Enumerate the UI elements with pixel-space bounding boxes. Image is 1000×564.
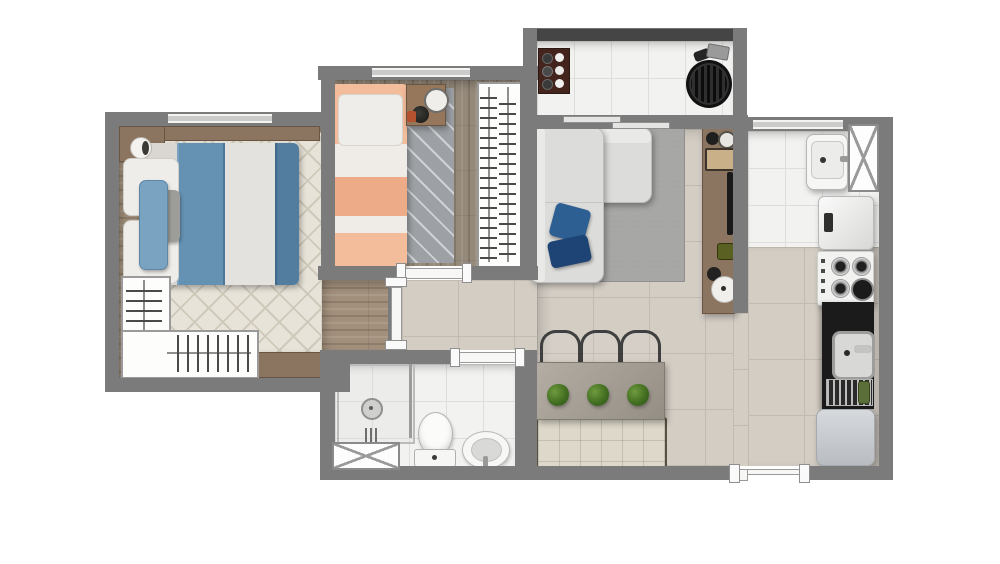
shower-head — [361, 398, 383, 420]
blue-foot-band — [275, 143, 299, 285]
bathroom-basin — [462, 431, 510, 469]
plate-shelf — [538, 48, 570, 94]
refrigerator — [816, 409, 875, 466]
decor-radio — [705, 148, 735, 171]
kitchen-sink — [832, 331, 875, 380]
plate — [555, 53, 564, 62]
wall-bottom-east — [800, 466, 893, 480]
stove — [817, 251, 874, 306]
nightstand-clock — [424, 88, 449, 113]
toilet-flush-button — [432, 455, 437, 460]
lamp-shade-shadow — [142, 141, 149, 155]
master-door-jamb — [385, 277, 407, 287]
plate — [555, 79, 564, 88]
master-door-jamb — [385, 340, 407, 350]
sink-drain — [844, 350, 850, 356]
washing-machine — [818, 196, 874, 250]
single-bed-pillow — [338, 94, 403, 146]
kitchen-counter — [822, 302, 874, 409]
blue-lumbar-pillow — [139, 180, 168, 270]
stove-burner — [831, 279, 850, 298]
sink-faucet — [855, 346, 871, 352]
bathroom-door-jamb — [450, 348, 460, 367]
balcony-glass-guardrail — [537, 28, 733, 41]
bedroom2-door-leaf — [404, 268, 464, 279]
dish-rack-plates-green — [858, 381, 870, 404]
bathroom-duct-shaft — [332, 442, 400, 470]
hallway-floor — [402, 280, 537, 350]
wood-dresser — [257, 352, 323, 378]
shower-head-center — [369, 406, 373, 410]
bedside-lamp — [130, 137, 152, 159]
shower-glass-partition — [409, 364, 412, 438]
nightstand-book — [407, 111, 416, 122]
corridor-floor — [733, 313, 748, 466]
wall-tv-console — [733, 126, 748, 313]
wardrobe-hangers — [499, 95, 516, 261]
blue-duvet — [177, 143, 225, 285]
bedroom2-door-jamb — [462, 263, 472, 283]
shower-drain — [365, 428, 378, 442]
master-door-leaf — [391, 287, 402, 342]
bedroom2-wardrobe — [477, 82, 523, 270]
wall-bath-east — [515, 364, 537, 466]
floor-plan — [0, 0, 1000, 564]
bathroom-door-jamb — [515, 348, 525, 367]
tufted-bench — [536, 417, 667, 469]
laundry-window — [753, 120, 843, 129]
white-duvet — [225, 143, 275, 285]
laundry-tank-sink — [806, 134, 848, 190]
master-bedroom-window — [168, 114, 272, 123]
wall-master-left — [105, 112, 119, 392]
washer-door-slot — [824, 213, 833, 232]
bedroom2-window — [372, 68, 470, 77]
sheet-band-2 — [332, 216, 407, 233]
peach-band-1 — [332, 177, 407, 216]
plate — [542, 79, 553, 90]
decor-tray-dot — [721, 286, 726, 291]
entry-door-jamb — [799, 464, 810, 483]
stove-knobs — [821, 259, 825, 297]
stove-burner — [831, 257, 850, 276]
round-grill — [686, 60, 732, 108]
plate — [555, 66, 564, 75]
laundry-duct-shaft — [848, 124, 879, 192]
wall-master-bed2-divider — [321, 66, 335, 280]
sofa-seam — [545, 202, 603, 203]
tv-console — [702, 127, 735, 314]
sheet-band-1 — [332, 144, 407, 177]
wall-balcony-right — [733, 28, 747, 121]
wall-master-bottom — [105, 378, 350, 392]
plate — [542, 53, 553, 64]
wall-right-outer — [879, 117, 893, 480]
wardrobe-hangers — [169, 335, 251, 372]
entry-door-jamb — [729, 464, 740, 483]
stove-burner — [852, 257, 871, 276]
plate — [542, 66, 553, 77]
wall-corner-joint — [320, 358, 350, 392]
tank-drain — [820, 157, 826, 163]
balcony-sliding-door-panel-2 — [612, 122, 670, 129]
single-bed-peach — [332, 84, 407, 266]
toilet-tank — [414, 449, 456, 467]
wardrobe-hangers — [480, 89, 497, 261]
wall-bed2-living-divider — [520, 66, 537, 280]
bathroom-door-leaf — [458, 352, 517, 363]
master-wardrobe-horizontal — [121, 330, 259, 379]
stove-burner-large — [851, 278, 874, 301]
